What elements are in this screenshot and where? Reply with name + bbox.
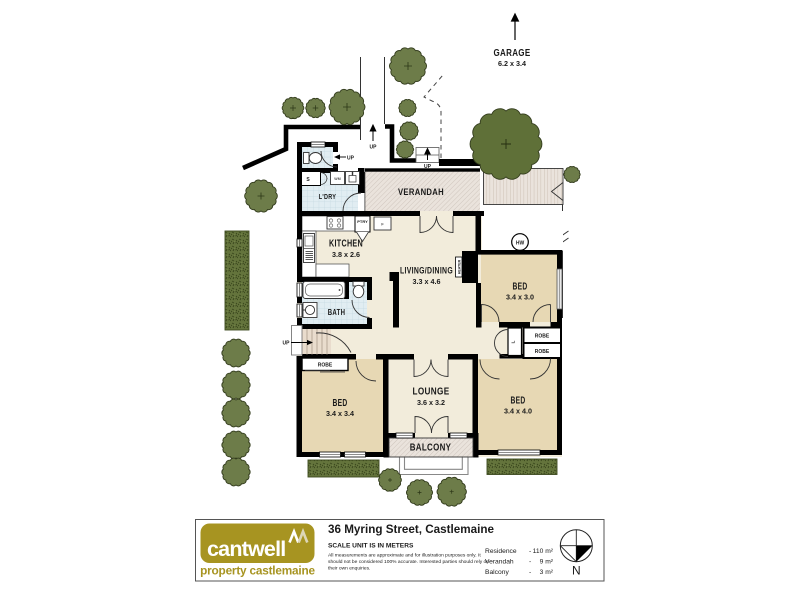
- svg-text:HW: HW: [516, 241, 525, 247]
- svg-text:LIVING/DINING: LIVING/DINING: [400, 266, 453, 276]
- svg-text:HEATER: HEATER: [457, 259, 461, 274]
- svg-text:36 Myring Street, Castlemaine: 36 Myring Street, Castlemaine: [328, 522, 494, 536]
- svg-text:property castlemaine: property castlemaine: [200, 564, 315, 578]
- svg-text:PTRY: PTRY: [357, 219, 368, 224]
- svg-text:3.3 x 4.6: 3.3 x 4.6: [413, 277, 441, 286]
- svg-text:BED: BED: [513, 282, 528, 293]
- svg-text:BED: BED: [333, 398, 348, 409]
- svg-text:3.4 x 3.0: 3.4 x 3.0: [506, 293, 534, 302]
- svg-text:cantwell: cantwell: [207, 537, 285, 561]
- svg-text:Residence: Residence: [485, 548, 517, 555]
- svg-text:BATH: BATH: [328, 308, 346, 317]
- svg-text:SCALE UNIT IS IN METERS: SCALE UNIT IS IN METERS: [328, 543, 414, 550]
- svg-text:N: N: [572, 564, 581, 578]
- svg-text:VERANDAH: VERANDAH: [398, 187, 444, 197]
- svg-text:KITCHEN: KITCHEN: [329, 239, 363, 250]
- svg-text:Verandah: Verandah: [485, 559, 514, 566]
- svg-text:3.4 x 3.4: 3.4 x 3.4: [326, 409, 354, 418]
- svg-text:9 m²: 9 m²: [540, 559, 554, 566]
- svg-text:UP: UP: [347, 156, 355, 162]
- svg-text:UP: UP: [283, 341, 291, 347]
- svg-text:All measurements are approxima: All measurements are approximate and for…: [328, 553, 481, 559]
- svg-text:L: L: [511, 340, 517, 343]
- svg-text:3.4 x 4.0: 3.4 x 4.0: [504, 407, 532, 416]
- svg-text:-: -: [529, 569, 531, 576]
- svg-text:their own enquiries.: their own enquiries.: [328, 566, 370, 572]
- svg-text:3 m²: 3 m²: [540, 569, 554, 576]
- svg-text:BALCONY: BALCONY: [410, 443, 452, 454]
- svg-text:ROBE: ROBE: [535, 334, 550, 340]
- svg-text:should not be considered 100%: should not be considered 100% accurate. …: [328, 559, 489, 565]
- svg-text:ROBE: ROBE: [535, 349, 550, 355]
- svg-text:WM: WM: [334, 177, 340, 181]
- svg-text:-: -: [529, 559, 531, 566]
- svg-text:Balcony: Balcony: [485, 569, 509, 576]
- svg-text:BED: BED: [511, 396, 526, 407]
- svg-text:110 m²: 110 m²: [533, 548, 554, 555]
- svg-text:3.8 x 2.6: 3.8 x 2.6: [332, 250, 360, 259]
- svg-text:GARAGE: GARAGE: [494, 47, 531, 59]
- svg-text:L'DRY: L'DRY: [319, 192, 337, 201]
- svg-text:ROBE: ROBE: [318, 363, 333, 369]
- svg-text:3.6 x 3.2: 3.6 x 3.2: [417, 398, 445, 407]
- svg-text:LOUNGE: LOUNGE: [413, 387, 450, 398]
- svg-text:-: -: [529, 548, 531, 555]
- svg-text:6.2 x 3.4: 6.2 x 3.4: [498, 59, 526, 68]
- svg-text:UP: UP: [370, 145, 378, 151]
